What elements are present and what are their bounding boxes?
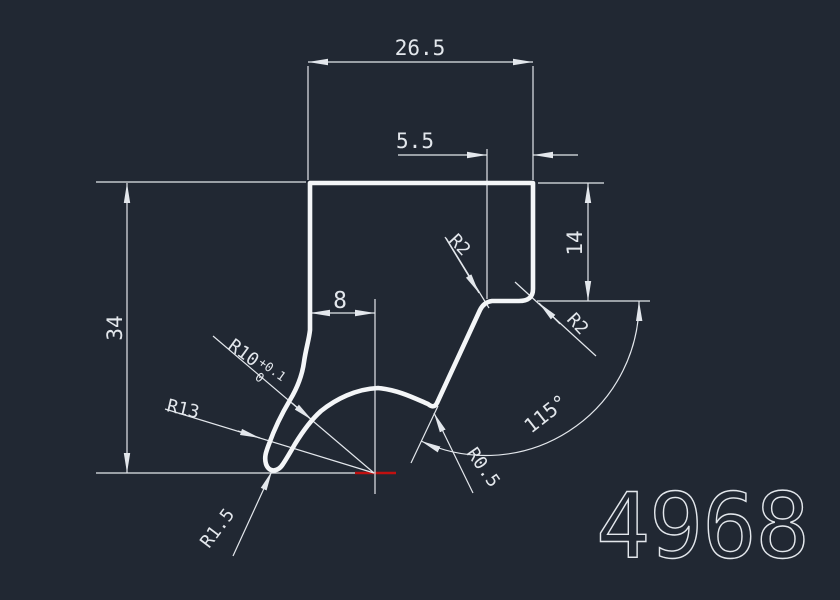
ext-line-angle-edge (411, 406, 438, 463)
radius-text-r13: R13 (165, 395, 201, 423)
dim-text-115: 115° (519, 389, 572, 438)
cad-drawing-canvas: 26.5 5.5 8 34 14 115° R2 R2 R10 +0.1 0 R… (0, 0, 840, 600)
leader-r1-5 (233, 471, 272, 556)
cad-drawing-svg: 26.5 5.5 8 34 14 115° R2 R2 R10 +0.1 0 R… (0, 0, 840, 600)
leader-r10-arrow (292, 403, 312, 420)
profile-outline (265, 183, 533, 470)
dim-text-5-5: 5.5 (396, 129, 434, 153)
radius-label-r10-group: R10 +0.1 0 (220, 334, 289, 395)
dim-text-14: 14 (563, 230, 587, 255)
leader-r2-right-arrow (539, 303, 560, 324)
dim-text-34: 34 (103, 315, 127, 340)
radius-text-r2-right: R2 (562, 309, 592, 339)
dim-text-26-5: 26.5 (395, 36, 446, 60)
leader-r13-arrow (238, 431, 260, 438)
radius-text-r2-left: R2 (444, 230, 474, 260)
dim-text-8: 8 (333, 288, 347, 314)
part-number: 4968 (596, 474, 809, 579)
radius-text-r1-5: R1.5 (196, 505, 239, 552)
